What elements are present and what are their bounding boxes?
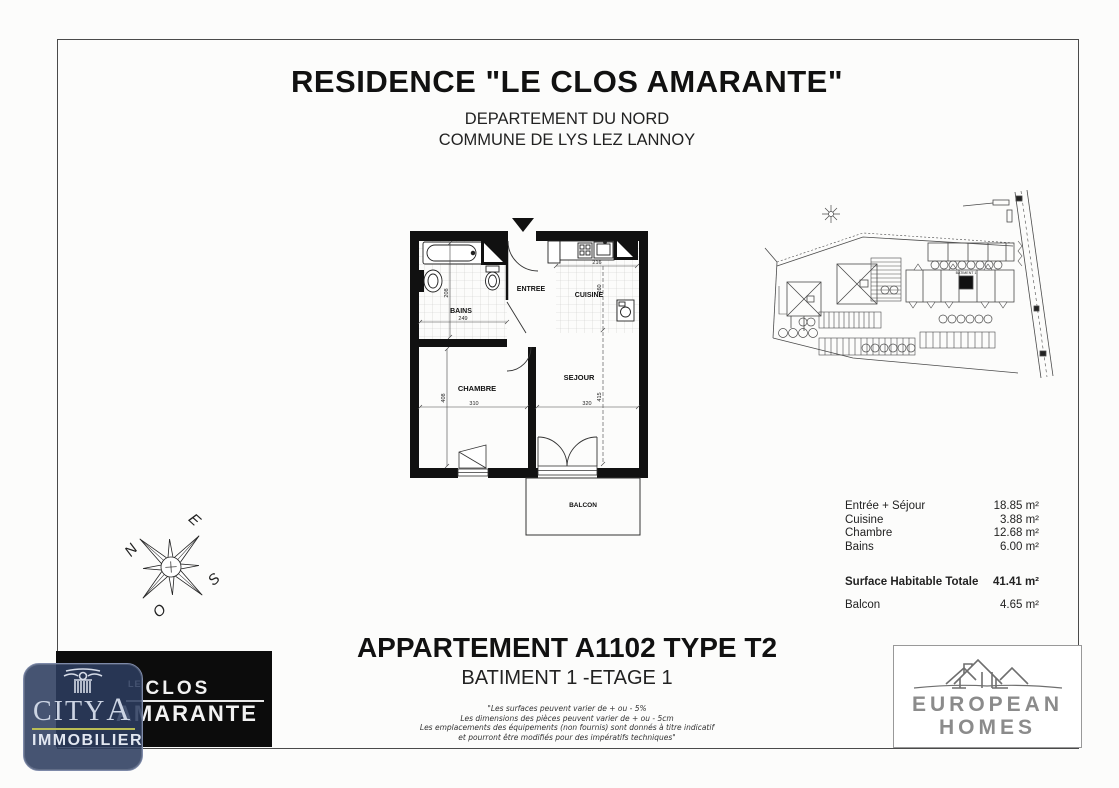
site-plan: BATIMENT 1 bbox=[763, 186, 1070, 386]
table-balcon-row: Balcon 4.65 m² bbox=[845, 599, 1039, 613]
subtitle-line2: COMMUNE DE LYS LEZ LANNOY bbox=[57, 130, 1077, 151]
site-batiment-label: BATIMENT 1 bbox=[956, 271, 977, 275]
row-label: Cuisine bbox=[845, 514, 883, 528]
total-label: Surface Habitable Totale bbox=[845, 576, 978, 590]
entrance-arrow-icon bbox=[512, 218, 534, 232]
bathtub-icon bbox=[423, 242, 483, 264]
balcon-value: 4.65 m² bbox=[1000, 599, 1039, 613]
total-value: 41.41 m² bbox=[993, 576, 1039, 590]
cuisine-duct-icon bbox=[614, 238, 638, 260]
citya-wordmark: CITYA bbox=[33, 692, 132, 729]
house-roofs-icon bbox=[894, 646, 1081, 696]
table-row: Chambre 12.68 m² bbox=[845, 527, 1039, 541]
sejour-label: SEJOUR bbox=[564, 373, 595, 382]
table-row: Bains 6.00 m² bbox=[845, 541, 1039, 555]
row-value: 3.88 m² bbox=[1000, 514, 1039, 528]
balcon-label: BALCON bbox=[569, 502, 597, 509]
bains-label: BAINS bbox=[450, 308, 472, 315]
table-total-row: Surface Habitable Totale 41.41 m² bbox=[845, 576, 1039, 590]
dim-sejour-width: 320 bbox=[582, 401, 591, 407]
column-capital-icon bbox=[60, 667, 106, 695]
apartment-floor-plan: BAINS ENTREE CUISINE CHAMBRE SEJOUR BALC… bbox=[400, 210, 670, 545]
water-heater-icon bbox=[617, 300, 634, 321]
row-value: 12.68 m² bbox=[994, 527, 1039, 541]
compass-o-label: O bbox=[150, 601, 171, 622]
document-header: RESIDENCE "LE CLOS AMARANTE" DEPARTEMENT… bbox=[57, 64, 1077, 151]
european-label: EUROPEAN bbox=[894, 693, 1081, 717]
table-row: Entrée + Séjour 18.85 m² bbox=[845, 500, 1039, 514]
subtitle-line1: DEPARTEMENT DU NORD bbox=[57, 109, 1077, 130]
chambre-label: CHAMBRE bbox=[458, 384, 496, 393]
department-subtitle: DEPARTEMENT DU NORD COMMUNE DE LYS LEZ L… bbox=[57, 109, 1077, 151]
balcon-label: Balcon bbox=[845, 599, 880, 613]
citya-accent-rule bbox=[32, 728, 135, 730]
compass-rose: N E S O bbox=[106, 500, 236, 630]
compass-e-label: E bbox=[185, 510, 205, 530]
toilet-icon bbox=[486, 266, 500, 290]
entree-label: ENTREE bbox=[517, 286, 546, 293]
compass-n-label: N bbox=[121, 540, 141, 560]
kitchen-counter-icon bbox=[548, 241, 614, 264]
european-homes-logo: EUROPEAN HOMES bbox=[893, 645, 1082, 748]
surface-area-table: Entrée + Séjour 18.85 m² Cuisine 3.88 m²… bbox=[845, 500, 1039, 612]
dim-cuisine-depth: 260 bbox=[597, 284, 603, 293]
citya-immobilier-logo: CITYA IMMOBILIER bbox=[23, 663, 143, 771]
dim-bains-width: 249 bbox=[458, 316, 467, 322]
homes-label: HOMES bbox=[894, 716, 1081, 740]
row-value: 18.85 m² bbox=[994, 500, 1039, 514]
dim-sejour-depth: 415 bbox=[597, 392, 603, 401]
table-row: Cuisine 3.88 m² bbox=[845, 514, 1039, 528]
floorplan-document-page: RESIDENCE "LE CLOS AMARANTE" DEPARTEMENT… bbox=[0, 0, 1119, 788]
citya-immobilier-label: IMMOBILIER bbox=[32, 732, 143, 750]
dim-chambre-depth: 408 bbox=[441, 393, 447, 402]
row-label: Chambre bbox=[845, 527, 892, 541]
residence-title: RESIDENCE "LE CLOS AMARANTE" bbox=[57, 64, 1077, 100]
compass-s-label: S bbox=[205, 570, 224, 589]
dim-cuisine-width: 216 bbox=[592, 260, 601, 266]
site-plan-north-star-icon bbox=[822, 205, 840, 223]
row-value: 6.00 m² bbox=[1000, 541, 1039, 555]
row-label: Bains bbox=[845, 541, 874, 555]
washbasin-icon bbox=[419, 270, 442, 292]
duct-shaft-icon bbox=[481, 240, 507, 265]
row-label: Entrée + Séjour bbox=[845, 500, 925, 514]
dim-chambre-width: 310 bbox=[469, 401, 478, 407]
dim-bains-depth: 208 bbox=[444, 288, 450, 297]
